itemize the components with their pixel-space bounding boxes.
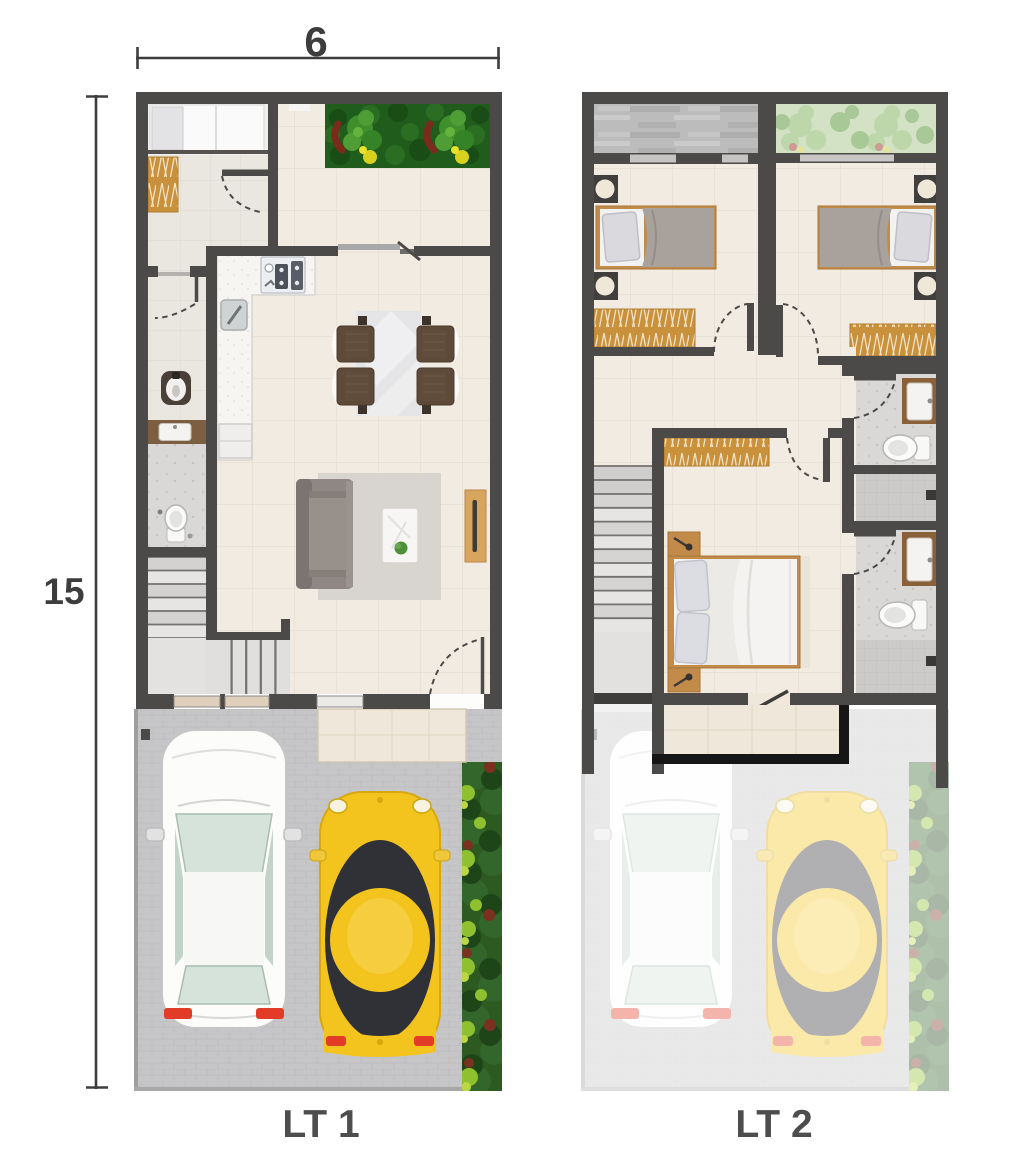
svg-text:LT 1: LT 1 bbox=[282, 1103, 359, 1146]
svg-text:15: 15 bbox=[43, 571, 84, 612]
svg-text:LT 2: LT 2 bbox=[735, 1103, 812, 1146]
svg-text:6: 6 bbox=[304, 18, 327, 65]
